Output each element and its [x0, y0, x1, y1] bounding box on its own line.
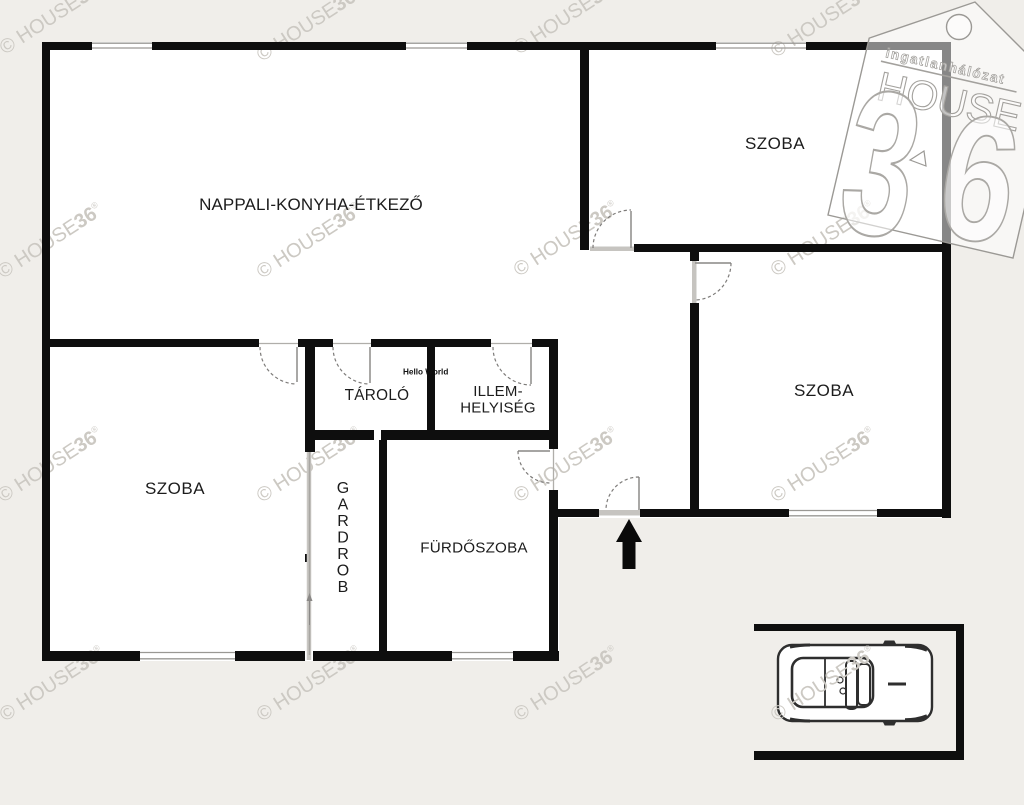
svg-text:B: B: [338, 579, 349, 596]
svg-text:D: D: [337, 530, 349, 547]
svg-text:A: A: [338, 497, 349, 514]
svg-text:FÜRDŐSZOBA: FÜRDŐSZOBA: [420, 539, 528, 557]
svg-text:TÁROLÓ: TÁROLÓ: [345, 387, 410, 404]
svg-text:O: O: [337, 563, 349, 580]
svg-text:NAPPALI-KONYHA-ÉTKEZŐ: NAPPALI-KONYHA-ÉTKEZŐ: [199, 195, 423, 214]
svg-text:SZOBA: SZOBA: [145, 479, 205, 498]
svg-text:SZOBA: SZOBA: [794, 381, 854, 400]
svg-text:SZOBA: SZOBA: [745, 134, 805, 153]
svg-text:R: R: [337, 513, 349, 530]
svg-text:ILLEM-: ILLEM-: [473, 383, 523, 400]
svg-text:HELYISÉG: HELYISÉG: [460, 400, 536, 417]
svg-text:R: R: [337, 546, 349, 563]
svg-text:Hello World: Hello World: [403, 368, 448, 377]
svg-text:G: G: [337, 480, 349, 497]
